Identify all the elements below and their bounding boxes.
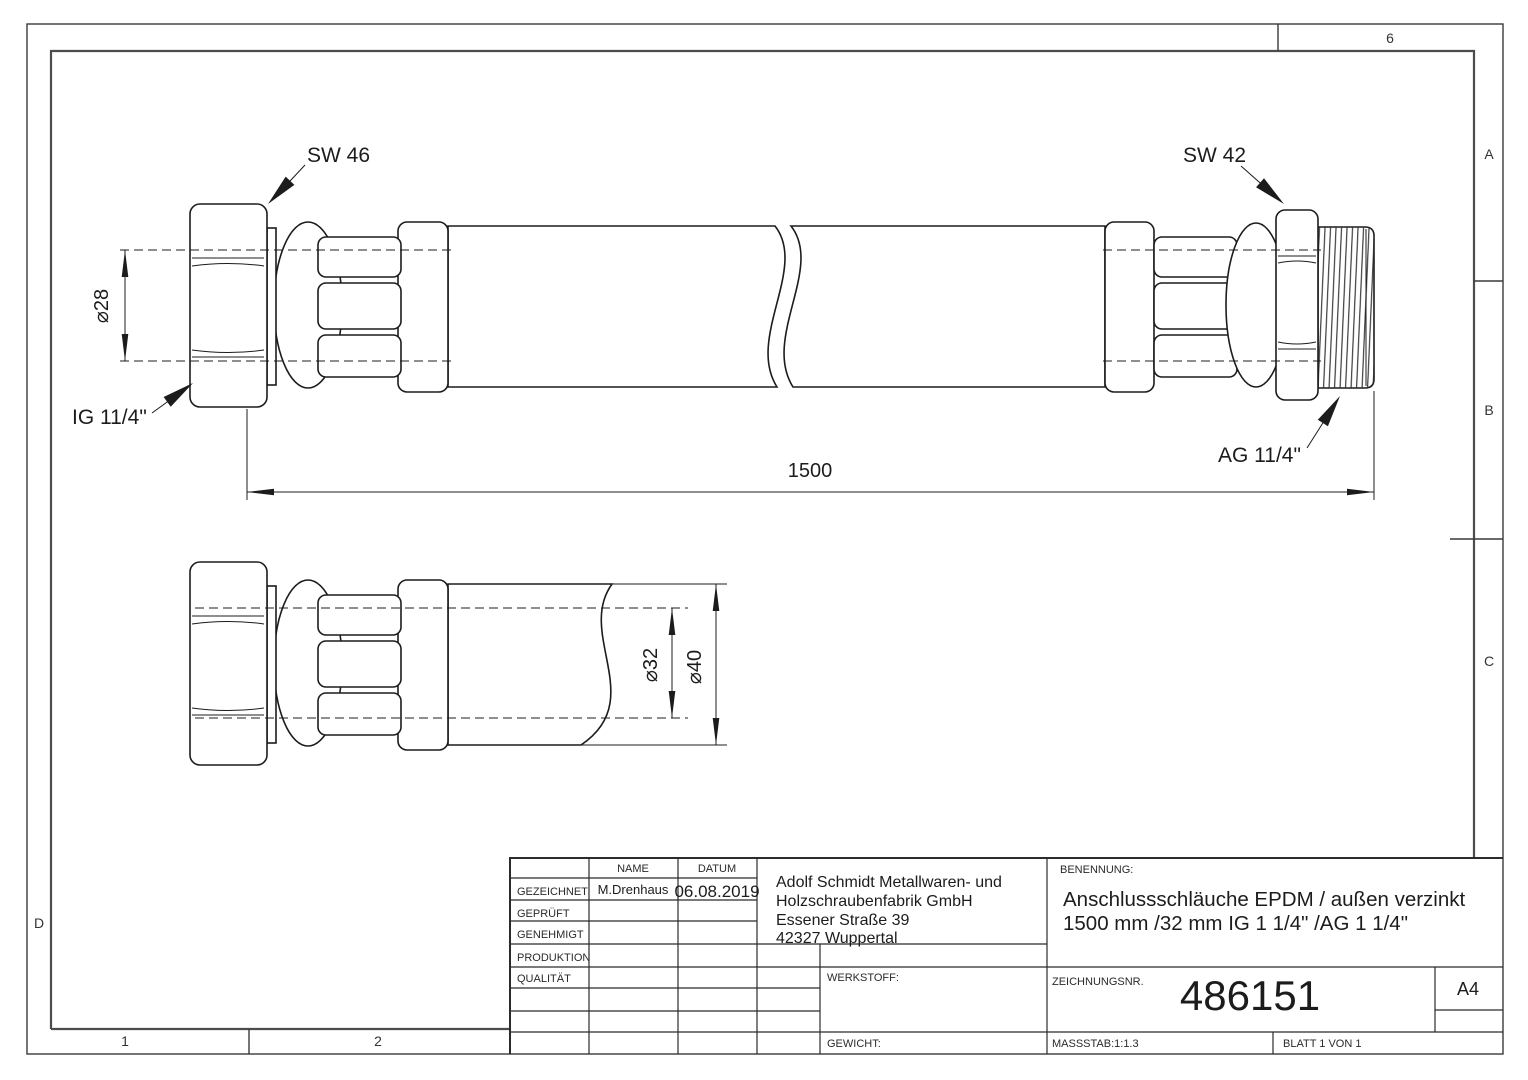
zone-row-a: A [1484,146,1494,162]
sheet-number-label: BLATT 1 VON 1 [1283,1038,1361,1050]
part-title-line-1: Anschlussschläuche EPDM / außen verzinkt [1063,888,1466,911]
sw42-label: SW 42 [1183,144,1246,167]
dia-32-label: ⌀32 [640,648,662,682]
row-label-qualitaet: QUALITÄT [517,973,571,985]
leader-sw42: SW 42 [1183,144,1288,208]
leader-ig-thread: IG 11/4" [72,378,197,429]
leader-ag-thread: AG 11/4" [1218,393,1345,467]
dimension-length-1500: 1500 [247,391,1374,500]
company-address: Adolf Schmidt Metallwaren- und Holzschra… [776,874,1002,947]
name-column-header: NAME [617,863,649,875]
leader-sw46: SW 46 [264,144,370,208]
dimension-dia-28: ⌀28 [91,250,128,361]
company-line-4: 42327 Wuppertal [776,930,898,947]
main-view-hose: ⌀28 1500 SW 46 SW 42 IG 11/4" [72,144,1374,500]
zone-row-b: B [1484,402,1493,418]
company-line-3: Essener Straße 39 [776,912,910,929]
dia-40-label: ⌀40 [684,650,706,684]
zone-row-d: D [34,915,44,931]
left-fitting-ig-nut [190,204,448,407]
scale-label: MASSSTAB:1:1.3 [1052,1038,1139,1050]
benennung-label: BENENNUNG: [1060,864,1133,876]
ag-label: AG 11/4" [1218,444,1301,467]
ig-label: IG 11/4" [72,406,147,429]
company-line-2: Holzschraubenfabrik GmbH [776,893,973,910]
zone-column-6: 6 [1386,30,1394,46]
length-1500-label: 1500 [788,460,833,482]
right-fitting-ag-thread [1105,210,1374,400]
dimension-dia-32: ⌀32 [640,608,675,718]
zone-column-2: 2 [374,1033,382,1049]
date-column-header: DATUM [698,863,736,875]
braided-hose-body [448,226,1105,387]
section-view-hose-end: ⌀32 ⌀40 [190,562,727,765]
cad-drawing-canvas: 6 A B C D 1 2 [0,0,1528,1080]
part-title-line-2: 1500 mm /32 mm IG 1 1/4" /AG 1 1/4" [1063,912,1408,935]
paper-format: A4 [1457,979,1479,999]
dia-28-label: ⌀28 [91,289,113,323]
werkstoff-label: WERKSTOFF: [827,972,899,984]
sw46-label: SW 46 [307,144,370,167]
drawn-date: 06.08.2019 [674,882,759,901]
zeichnungsnr-label: ZEICHNUNGSNR. [1052,976,1144,988]
row-label-genehmigt: GENEHMIGT [517,929,584,941]
drawing-number: 486151 [1180,972,1320,1019]
zone-column-1: 1 [121,1033,129,1049]
sheet-inner-frame [51,51,1474,1029]
zone-row-c: C [1484,653,1494,669]
row-label-produktion: PRODUKTION [517,952,590,964]
row-label-geprueft: GEPRÜFT [517,908,570,920]
row-label-gezeichnet: GEZEICHNET [517,886,588,898]
company-line-1: Adolf Schmidt Metallwaren- und [776,874,1002,891]
dimension-dia-40: ⌀40 [684,584,719,745]
gewicht-label: GEWICHT: [827,1038,881,1050]
section-left-fitting [190,562,448,765]
drawn-by-name: M.Drenhaus [598,882,669,897]
drawing-sheet: 6 A B C D 1 2 [0,0,1528,1080]
title-block: NAME DATUM GEZEICHNET M.Drenhaus 06.08.2… [510,858,1503,1054]
